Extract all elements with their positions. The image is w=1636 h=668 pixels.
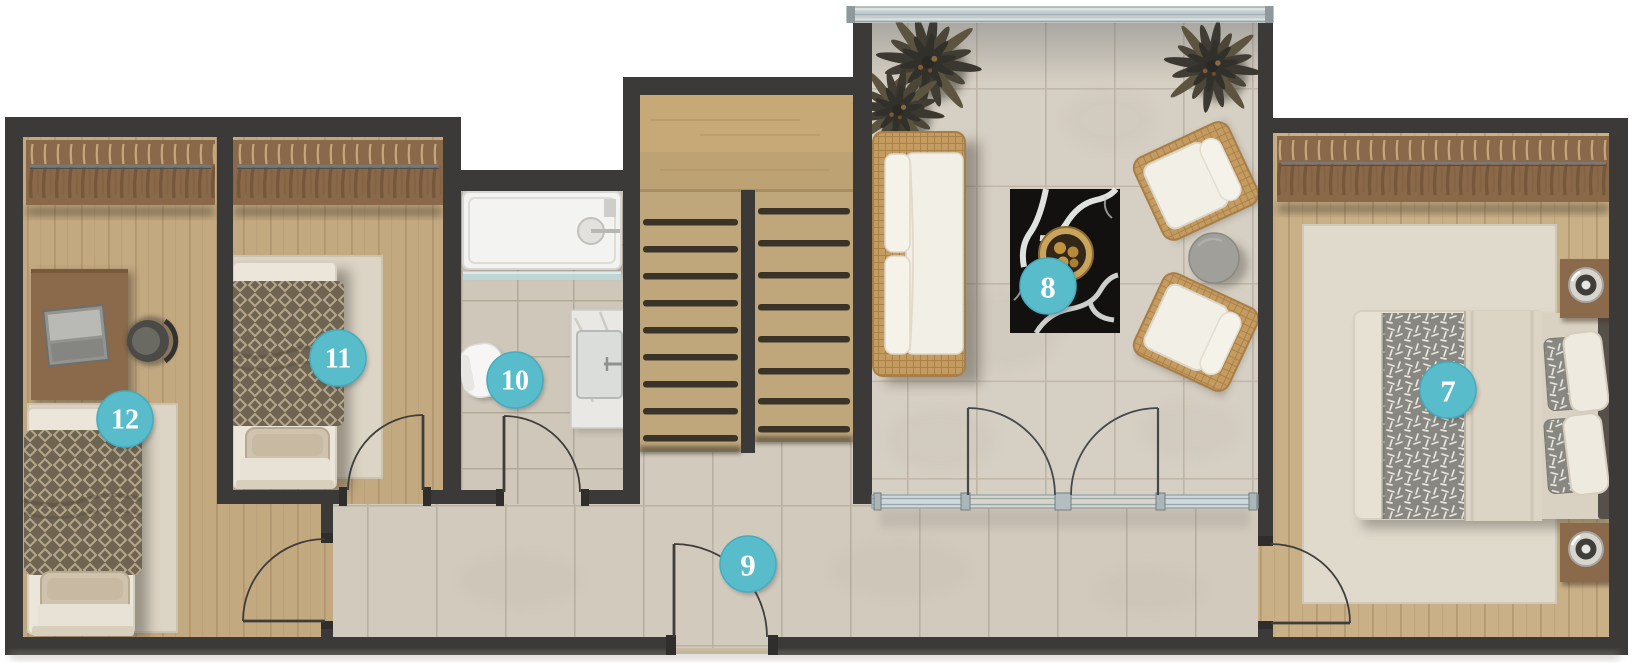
svg-text:12: 12	[111, 405, 139, 436]
svg-text:10: 10	[501, 366, 529, 397]
svg-text:11: 11	[325, 344, 351, 375]
svg-text:9: 9	[740, 548, 756, 583]
svg-text:8: 8	[1040, 270, 1056, 305]
svg-text:7: 7	[1440, 374, 1456, 409]
